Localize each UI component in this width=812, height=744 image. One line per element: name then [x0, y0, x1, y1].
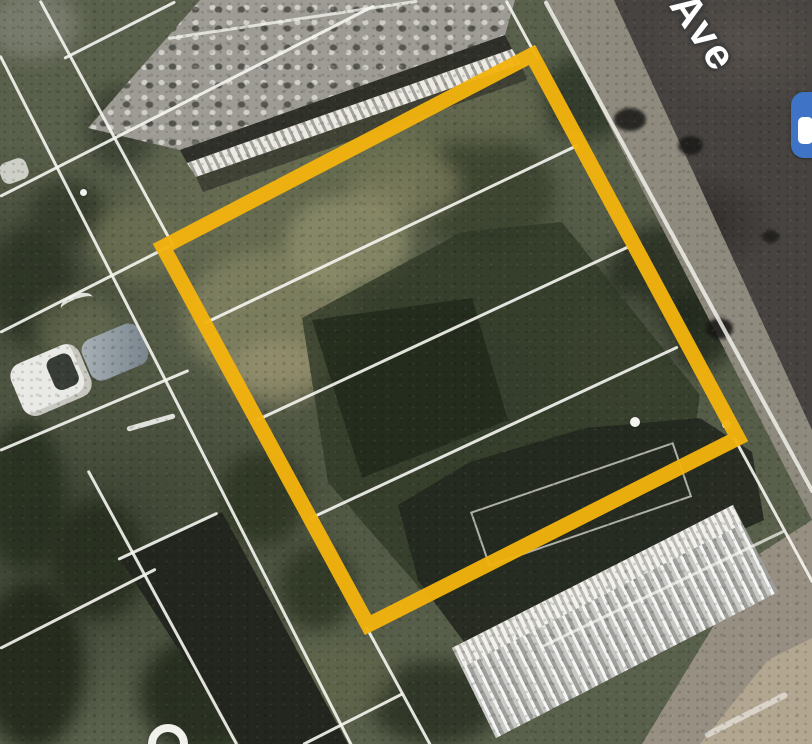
- satellite-map-canvas[interactable]: Ave: [0, 0, 812, 744]
- parcel-highlight-outline: [163, 55, 738, 625]
- poi-glyph-icon: [798, 117, 812, 144]
- poi-icon[interactable]: [791, 92, 812, 158]
- parcel-highlight-overlay: [0, 0, 812, 744]
